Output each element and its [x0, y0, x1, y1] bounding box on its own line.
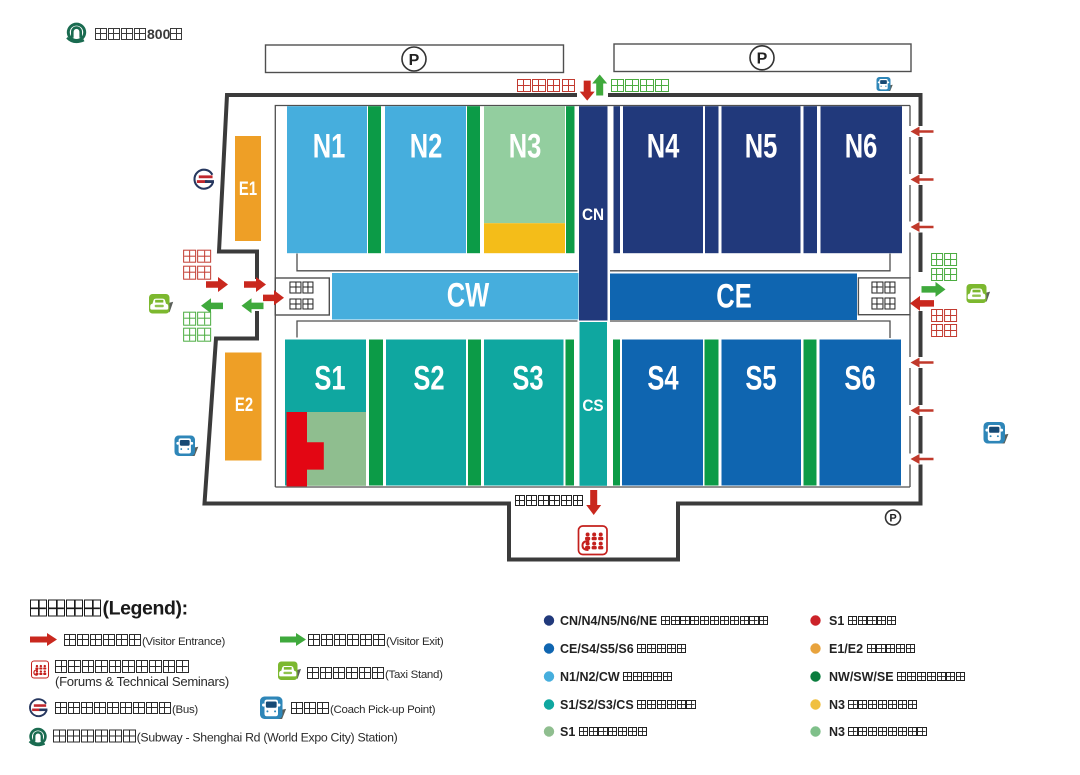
svg-text:P: P [409, 52, 420, 69]
svg-text:P: P [757, 51, 768, 68]
svg-text:P: P [889, 512, 896, 524]
